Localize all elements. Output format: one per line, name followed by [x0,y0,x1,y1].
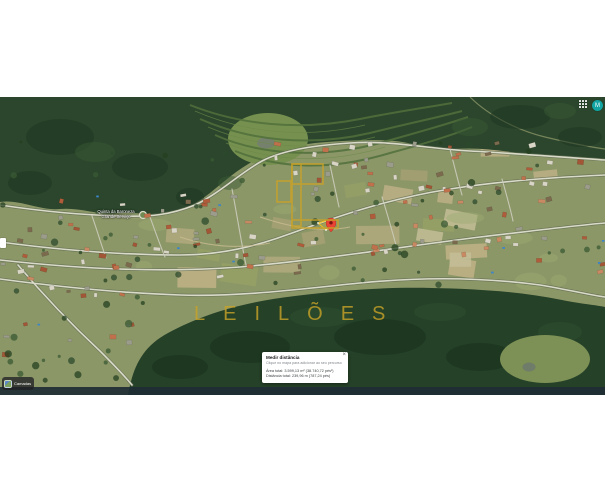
measure-distance-total: Distância total: 239,96 m (787,24 pés) [266,374,344,379]
account-avatar[interactable]: M [592,100,603,111]
poi-label-line2: Grande Serviço [86,214,146,219]
layers-control[interactable]: Camadas [2,377,34,390]
satellite-terrain [0,97,605,395]
close-icon[interactable]: × [342,352,346,359]
map-canvas[interactable]: Quinta da Baroneza Grande Serviço LEILÕE… [0,97,605,395]
watermark-brand-text: LEILÕES [194,303,403,326]
avatar-letter: M [595,103,600,109]
watermark-logo [276,160,340,238]
measure-dialog-subtitle: Clique no mapa para adicionar ao seu per… [266,361,344,366]
apps-grid-icon[interactable] [579,100,587,108]
measure-distance-dialog: × Medir distância Clique no mapa para ad… [262,352,348,383]
map-poi-label[interactable]: Quinta da Baroneza Grande Serviço [86,209,146,219]
layers-label: Camadas [14,381,31,386]
layers-thumbnail-icon [4,380,12,388]
partial-map-label [0,238,6,248]
maps-app-window: Quinta da Baroneza Grande Serviço LEILÕE… [0,0,605,487]
